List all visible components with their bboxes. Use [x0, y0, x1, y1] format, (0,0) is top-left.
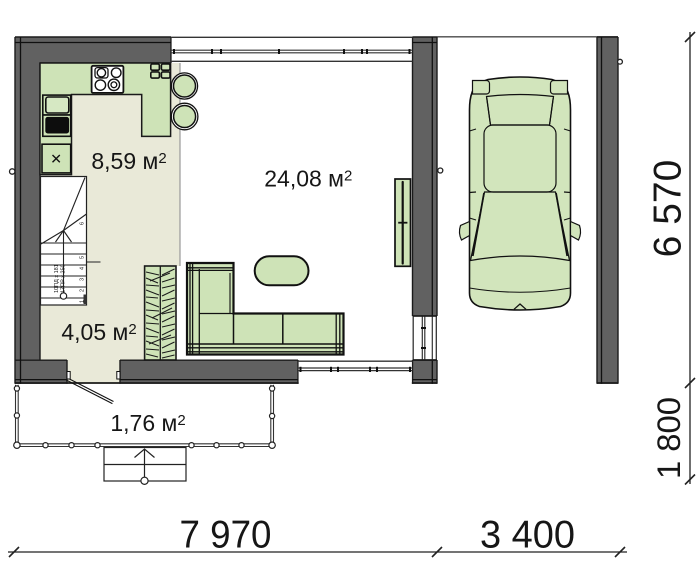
svg-text:4: 4 — [80, 267, 86, 270]
svg-text:6: 6 — [80, 222, 86, 225]
svg-text:17ПР x 250: 17ПР x 250 — [61, 264, 67, 293]
svg-text:8,59 м2: 8,59 м2 — [91, 148, 166, 174]
svg-text:4,05 м2: 4,05 м2 — [61, 319, 136, 345]
svg-text:5: 5 — [80, 256, 86, 259]
svg-text:1,76 м2: 1,76 м2 — [110, 410, 185, 436]
svg-text:3: 3 — [80, 278, 86, 281]
svg-text:1: 1 — [80, 300, 86, 303]
svg-text:7 970: 7 970 — [180, 514, 272, 557]
svg-text:6 570: 6 570 — [647, 160, 690, 258]
svg-text:10ПД x 181: 10ПД x 181 — [54, 264, 60, 293]
svg-text:1 800: 1 800 — [650, 397, 687, 479]
svg-text:2: 2 — [80, 289, 86, 292]
svg-text:24,08 м2: 24,08 м2 — [264, 166, 352, 192]
svg-text:3 400: 3 400 — [480, 514, 575, 557]
